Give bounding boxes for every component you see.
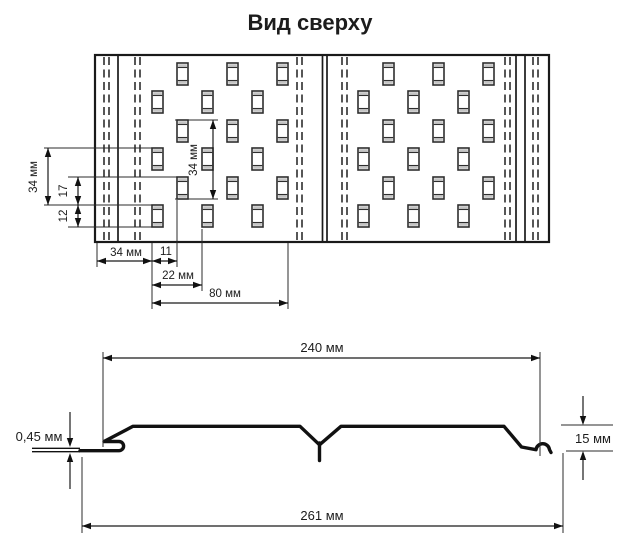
perforation-slot (458, 205, 469, 227)
arrow-up-icon (210, 120, 216, 129)
dim-label: 0,45 мм (16, 429, 63, 444)
arrow-down-icon (67, 438, 73, 447)
perforation-slot (202, 148, 213, 170)
perforation-slot (483, 120, 494, 142)
arrow-up-icon (67, 453, 73, 462)
dim-label: 17 (58, 185, 70, 198)
perforation-slot (483, 63, 494, 85)
technical-drawing-page: Вид сверху (0, 0, 630, 550)
dim-second-shift: 22 мм (152, 270, 202, 288)
perforation-slot (252, 91, 263, 113)
dim-label: 34 мм (188, 144, 200, 176)
dim-label: 34 мм (28, 161, 40, 193)
dim-label: 22 мм (162, 270, 194, 282)
dim-label: 34 мм (110, 247, 142, 259)
perforation-slot (358, 205, 369, 227)
perforation-slot (177, 63, 188, 85)
dim-row-offset-vertical: 17 (58, 177, 81, 205)
perforation-slot (483, 177, 494, 199)
perforation-slot (358, 91, 369, 113)
dim-label: 80 мм (209, 288, 241, 300)
arrow-left-icon (152, 282, 161, 288)
perforation-slot (277, 63, 288, 85)
arrow-down-icon (210, 190, 216, 199)
perforation-slot (177, 177, 188, 199)
perforation-slot (408, 205, 419, 227)
arrow-up-icon (75, 205, 81, 214)
perforation-slot (277, 120, 288, 142)
arrow-down-icon (75, 196, 81, 205)
dim-row-pitch-vertical: 34 мм (28, 148, 51, 205)
perforation-slot (408, 91, 419, 113)
arrow-down-icon (580, 416, 586, 425)
technical-drawing: Вид сверху (0, 0, 630, 550)
perforation-slot (408, 148, 419, 170)
arrow-left-icon (103, 355, 112, 361)
perforation-slot (383, 177, 394, 199)
arrow-down-icon (75, 218, 81, 227)
dim-group-width: 80 мм (152, 288, 288, 306)
dim-label: 15 мм (575, 431, 611, 446)
arrow-right-icon (143, 258, 152, 264)
arrow-up-icon (45, 148, 51, 157)
perforation-slot (202, 205, 213, 227)
perforation-slot (152, 148, 163, 170)
panel-profile-contour (80, 426, 551, 452)
dim-thickness: 0,45 мм (16, 412, 74, 489)
perforation-slot (277, 177, 288, 199)
arrow-up-icon (580, 451, 586, 460)
perforation-slot (227, 63, 238, 85)
perforation-slot (433, 120, 444, 142)
perforation-slot (177, 120, 188, 142)
perforation-slot (458, 91, 469, 113)
dim-label: 11 (160, 246, 172, 258)
arrow-left-icon (152, 258, 161, 264)
arrow-left-icon (82, 523, 91, 529)
dim-height: 15 мм (561, 396, 613, 480)
arrow-up-icon (75, 177, 81, 186)
arrow-right-icon (193, 282, 202, 288)
arrow-right-icon (531, 355, 540, 361)
perforation-slot (252, 205, 263, 227)
dim-label: 261 мм (300, 508, 343, 523)
perforation-slot (433, 63, 444, 85)
perforation-slot (152, 91, 163, 113)
arrow-right-icon (279, 300, 288, 306)
perforation-slot (358, 148, 369, 170)
perforation-slot (227, 177, 238, 199)
dim-label: 12 (58, 210, 70, 223)
arrow-down-icon (45, 196, 51, 205)
arrow-right-icon (168, 258, 177, 264)
perforation-slot (383, 120, 394, 142)
perforation-slot (252, 148, 263, 170)
dim-edge-to-slot: 34 мм (97, 247, 152, 264)
perforation-slot (383, 63, 394, 85)
dim-row-shift: 11 (152, 246, 177, 264)
dim-label: 240 мм (300, 340, 343, 355)
top-view: 34 мм 17 12 34 мм (28, 55, 549, 309)
perforation-slot (152, 205, 163, 227)
perforation-slot (458, 148, 469, 170)
perforation-slot (202, 91, 213, 113)
drawing-title: Вид сверху (247, 10, 373, 35)
dim-total-width: 261 мм (82, 453, 563, 533)
arrow-left-icon (152, 300, 161, 306)
dashed-fold-lines (104, 57, 538, 240)
arrow-left-icon (97, 258, 106, 264)
perforation-slot (227, 120, 238, 142)
profile-view: 240 мм 261 мм 0,45 мм 15 мм (16, 340, 613, 533)
arrow-right-icon (554, 523, 563, 529)
dim-top-width: 240 мм (103, 340, 540, 456)
perforation-slot (433, 177, 444, 199)
dim-slot-height: 12 (58, 205, 81, 227)
